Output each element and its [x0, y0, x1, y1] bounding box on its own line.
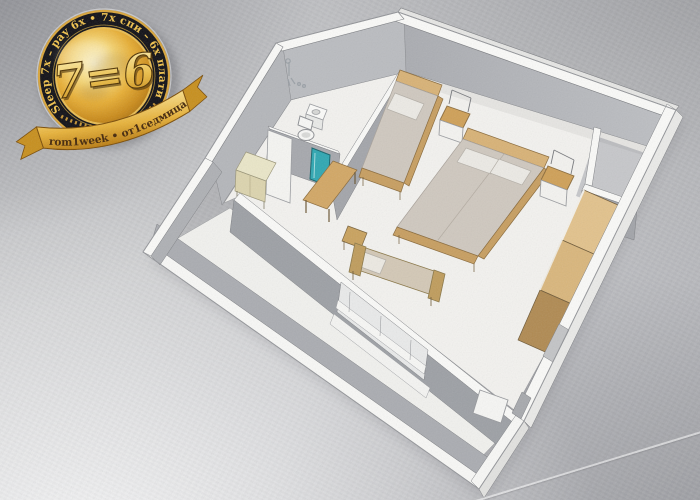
promo-badge: Sleep 7x – pay 6x • 7х спи – 6х плати 7=…	[0, 0, 230, 185]
promo-floorplan-photo: Sleep 7x – pay 6x • 7х спи – 6х плати 7=…	[0, 0, 700, 500]
